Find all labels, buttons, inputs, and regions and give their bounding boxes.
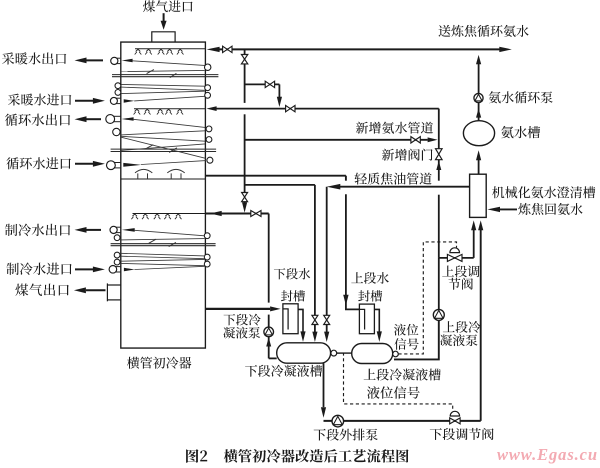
svg-text:www.Egas.cu: www.Egas.cu <box>497 445 598 464</box>
